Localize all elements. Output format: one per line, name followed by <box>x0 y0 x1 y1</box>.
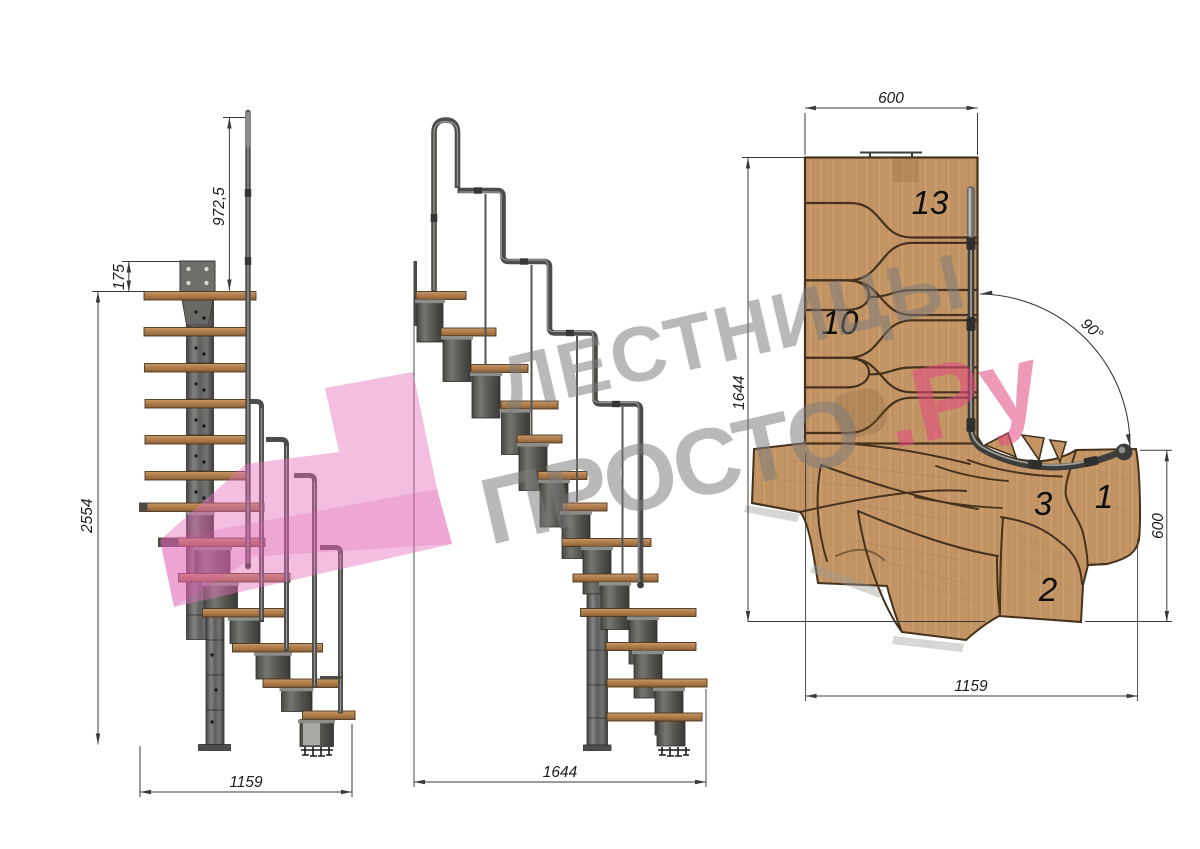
svg-text:175: 175 <box>111 264 128 290</box>
svg-text:90°: 90° <box>1077 315 1106 343</box>
svg-text:972,5: 972,5 <box>211 187 228 226</box>
svg-text:1159: 1159 <box>229 774 263 791</box>
svg-text:600: 600 <box>878 90 904 107</box>
svg-text:1159: 1159 <box>954 678 988 695</box>
svg-text:2554: 2554 <box>79 498 96 534</box>
svg-text:600: 600 <box>1150 513 1167 539</box>
svg-text:3: 3 <box>1034 485 1053 522</box>
svg-text:1644: 1644 <box>543 764 578 781</box>
svg-text:2: 2 <box>1038 571 1057 608</box>
svg-text:13: 13 <box>912 184 949 221</box>
svg-text:1: 1 <box>1095 478 1113 515</box>
